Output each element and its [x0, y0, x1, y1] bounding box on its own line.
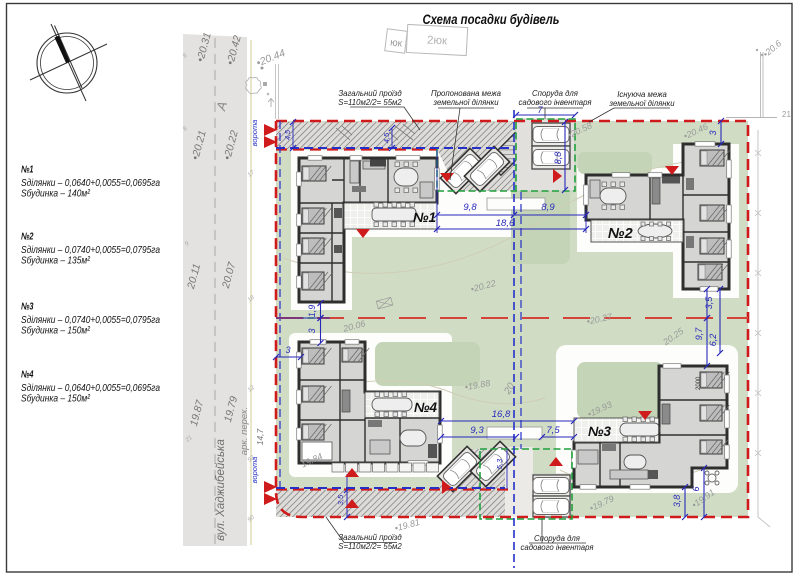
- svg-text:Sбудинка – 140м²: Sбудинка – 140м²: [21, 188, 90, 200]
- svg-text:3: 3: [285, 345, 290, 355]
- svg-text:6,2: 6,2: [708, 334, 718, 347]
- svg-text:2000: 2000: [696, 376, 702, 390]
- svg-text:Споруда для: Споруда для: [532, 89, 579, 98]
- svg-text:S=110м2/2= 55м2: S=110м2/2= 55м2: [338, 98, 402, 107]
- svg-text:4,5: 4,5: [285, 130, 292, 140]
- svg-text:2юк: 2юк: [427, 34, 449, 47]
- svg-text:№4: №4: [21, 370, 34, 381]
- svg-text:3,5: 3,5: [704, 296, 714, 310]
- svg-text:9,3: 9,3: [470, 425, 484, 436]
- svg-text:16,8: 16,8: [492, 409, 511, 420]
- svg-text:18,6: 18,6: [496, 218, 515, 229]
- svg-text:14,7: 14,7: [255, 428, 265, 445]
- svg-text:3: 3: [708, 130, 718, 135]
- svg-text:вул. Хаджибейська: вул. Хаджибейська: [215, 439, 227, 541]
- svg-text:арк. перех.: арк. перех.: [239, 407, 250, 455]
- svg-text:земельної ділянки: земельної ділянки: [608, 99, 675, 108]
- svg-text:3,5: 3,5: [336, 494, 345, 505]
- svg-text:7,5: 7,5: [546, 425, 560, 436]
- svg-text:Споруда для: Споруда для: [534, 534, 581, 543]
- svg-text:8,8: 8,8: [553, 152, 563, 165]
- svg-text:S=110м2/2= 55м2: S=110м2/2= 55м2: [338, 542, 402, 551]
- svg-text:6: 6: [691, 486, 701, 491]
- svg-text:Sбудинка – 150м²: Sбудинка – 150м²: [21, 393, 90, 405]
- svg-text:№2: №2: [608, 226, 633, 242]
- svg-text:ворота: ворота: [250, 457, 259, 484]
- svg-text:Пропонована межа: Пропонована межа: [431, 89, 502, 98]
- svg-text:4,5: 4,5: [382, 132, 391, 143]
- svg-text:земельної ділянки: земельної ділянки: [432, 98, 499, 107]
- svg-text:Загальний проїзд: Загальний проїзд: [338, 89, 402, 98]
- svg-text:садового інвентаря: садового інвентаря: [518, 98, 592, 107]
- svg-text:9,8: 9,8: [463, 202, 477, 213]
- svg-text:3: 3: [307, 328, 317, 333]
- svg-text:Існуюча межа: Існуюча межа: [617, 90, 667, 99]
- svg-text:№3: №3: [588, 424, 611, 439]
- svg-text:1,9: 1,9: [307, 305, 317, 318]
- svg-text:9,7: 9,7: [694, 327, 704, 341]
- svg-text:№2: №2: [21, 232, 34, 243]
- svg-text:№3: №3: [21, 302, 34, 313]
- svg-text:Sбудинка – 135м²: Sбудинка – 135м²: [21, 255, 90, 267]
- svg-text:Схема посадки будівель: Схема посадки будівель: [423, 11, 560, 27]
- svg-text:ворота: ворота: [250, 120, 259, 147]
- svg-text:21: 21: [782, 110, 791, 119]
- svg-text:садового інвентаря: садового інвентаря: [520, 543, 594, 552]
- svg-text:№4: №4: [414, 400, 437, 415]
- svg-text:5,3: 5,3: [495, 458, 504, 469]
- svg-text:№1: №1: [21, 165, 34, 176]
- svg-text:8,9: 8,9: [541, 202, 555, 213]
- svg-text:Загальний проїзд: Загальний проїзд: [338, 533, 402, 542]
- svg-text:3,8: 3,8: [672, 495, 682, 508]
- svg-text:№1: №1: [413, 210, 436, 225]
- svg-text:юк: юк: [389, 37, 403, 49]
- svg-text:Sбудинка – 150м²: Sбудинка – 150м²: [21, 325, 90, 337]
